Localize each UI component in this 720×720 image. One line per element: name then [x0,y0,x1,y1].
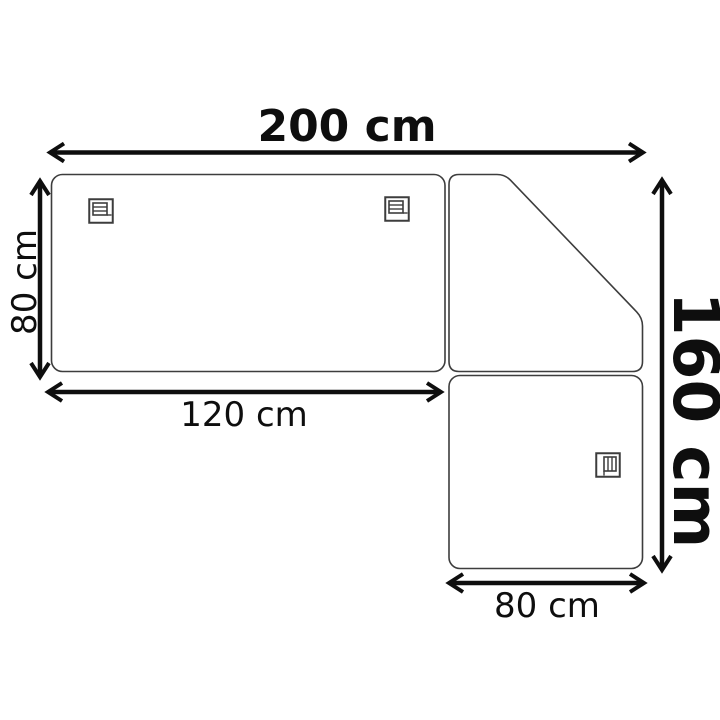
corner-diagonal-section [449,175,643,372]
diagram-svg: 200 cm 80 cm 120 cm 80 cm 160 cm [0,0,720,720]
left-depth-label: 80 cm [5,229,45,335]
corner-section-outline [449,175,643,372]
bottom-right-square-section [449,376,643,569]
total-depth-label: 160 cm [659,292,720,548]
total-width-label: 200 cm [257,101,436,152]
dimension-diagram: 200 cm 80 cm 120 cm 80 cm 160 cm [0,0,720,720]
left-width-label: 120 cm [180,395,308,435]
bottom-section-outline [449,376,643,569]
right-width-label: 80 cm [494,586,600,626]
